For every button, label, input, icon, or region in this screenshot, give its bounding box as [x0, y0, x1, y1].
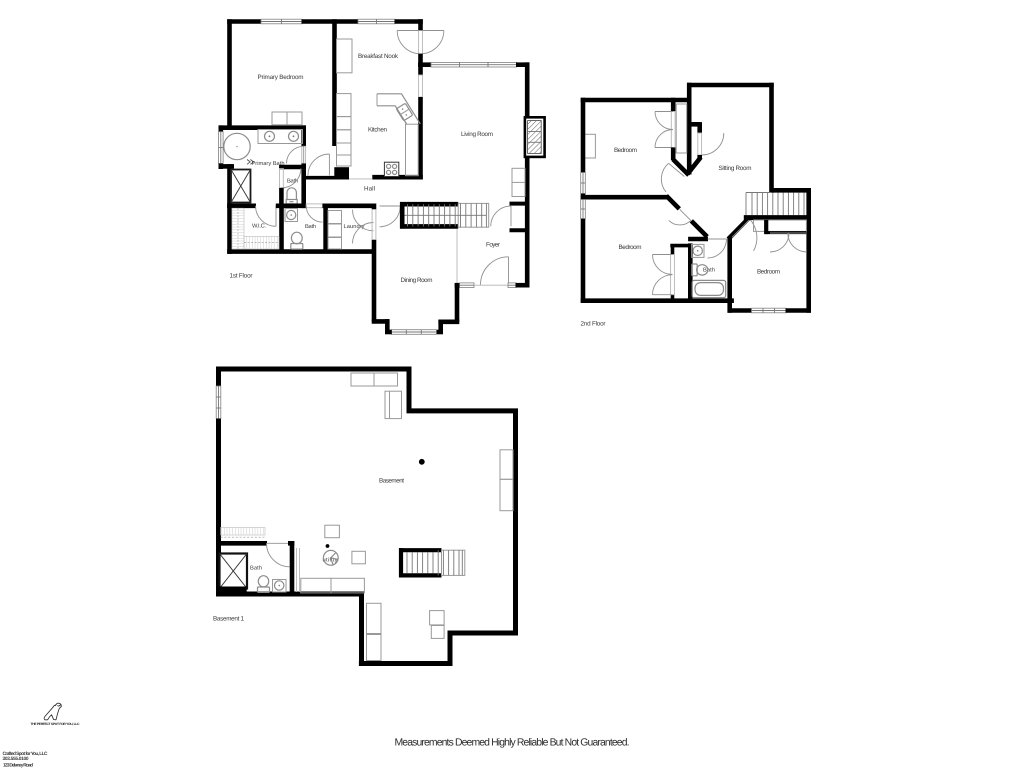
- svg-text:Basement: Basement: [379, 478, 404, 485]
- svg-text:Bedroom: Bedroom: [757, 269, 780, 276]
- svg-text:Foyer: Foyer: [486, 242, 500, 249]
- svg-text:Sitting Room: Sitting Room: [719, 165, 752, 172]
- svg-text:Hall: Hall: [364, 186, 375, 193]
- svg-text:Dining Room: Dining Room: [401, 277, 433, 284]
- svg-text:2nd Floor: 2nd Floor: [581, 321, 606, 328]
- svg-text:303.555.0100: 303.555.0100: [3, 756, 29, 762]
- svg-text:Kitchen: Kitchen: [368, 127, 387, 134]
- svg-text:123 Delaney Road: 123 Delaney Road: [3, 763, 33, 768]
- svg-text:Bath: Bath: [250, 565, 262, 572]
- svg-text:Breakfast Nook: Breakfast Nook: [358, 53, 399, 60]
- svg-text:W.I.C.: W.I.C.: [252, 224, 266, 230]
- svg-text:Living Room: Living Room: [461, 131, 493, 138]
- svg-text:Bedroom: Bedroom: [614, 147, 637, 154]
- svg-text:1st Floor: 1st Floor: [230, 273, 253, 280]
- svg-text:THE PERFECT SPOT FOR YOU, LLC: THE PERFECT SPOT FOR YOU, LLC: [31, 722, 81, 726]
- svg-text:Basement 1: Basement 1: [213, 616, 244, 623]
- svg-text:Bedroom: Bedroom: [619, 244, 642, 251]
- svg-text:Measurements Deemed Highly Rel: Measurements Deemed Highly Reliable But …: [395, 738, 630, 749]
- svg-text:Bath: Bath: [703, 267, 715, 274]
- svg-text:Bath: Bath: [305, 223, 316, 230]
- svg-text:Primary Bedroom: Primary Bedroom: [258, 74, 304, 81]
